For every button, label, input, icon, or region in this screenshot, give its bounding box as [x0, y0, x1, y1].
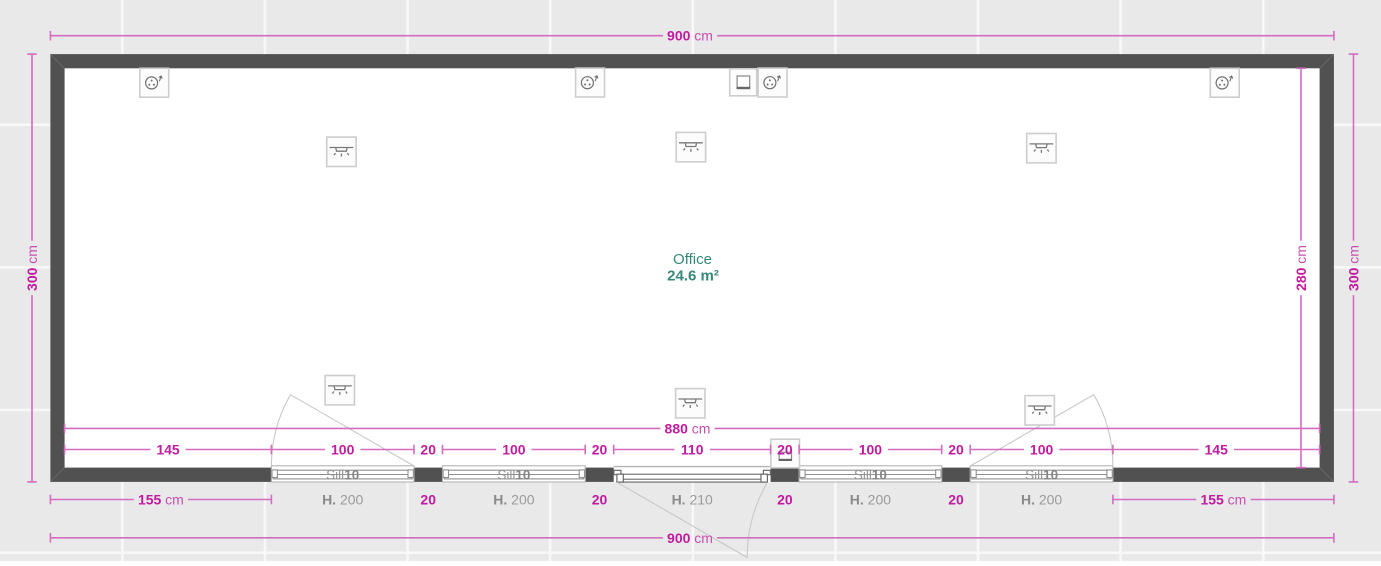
svg-text:20: 20	[420, 492, 436, 508]
svg-text:H. 200: H. 200	[493, 492, 534, 508]
svg-text:Sill10: Sill10	[326, 468, 359, 483]
svg-text:300 cm: 300 cm	[1346, 245, 1362, 291]
svg-text:20: 20	[592, 442, 608, 458]
svg-text:20: 20	[948, 442, 964, 458]
svg-text:20: 20	[777, 492, 793, 508]
svg-text:155 cm: 155 cm	[1200, 492, 1246, 508]
svg-text:24.6 m²: 24.6 m²	[667, 268, 719, 285]
svg-text:900 cm: 900 cm	[667, 530, 713, 546]
svg-text:20: 20	[948, 492, 964, 508]
svg-text:H. 210: H. 210	[672, 492, 713, 508]
svg-text:100: 100	[1030, 442, 1054, 458]
svg-text:100: 100	[859, 442, 883, 458]
svg-text:300 cm: 300 cm	[24, 245, 40, 291]
svg-text:110: 110	[681, 442, 704, 458]
svg-text:H. 200: H. 200	[1021, 492, 1062, 508]
svg-text:155 cm: 155 cm	[138, 492, 184, 508]
svg-text:Sill10: Sill10	[854, 468, 887, 483]
svg-text:280 cm: 280 cm	[1293, 245, 1309, 291]
svg-text:Sill10: Sill10	[1025, 468, 1058, 483]
svg-text:20: 20	[420, 442, 436, 458]
svg-text:20: 20	[777, 442, 793, 458]
svg-text:100: 100	[502, 442, 526, 458]
svg-text:H. 200: H. 200	[322, 492, 363, 508]
svg-text:100: 100	[331, 442, 355, 458]
svg-text:20: 20	[592, 492, 608, 508]
svg-text:880 cm: 880 cm	[665, 420, 711, 436]
svg-text:Sill10: Sill10	[497, 468, 530, 483]
svg-text:900 cm: 900 cm	[667, 28, 713, 44]
svg-text:H. 200: H. 200	[850, 492, 891, 508]
svg-text:145: 145	[1205, 442, 1229, 458]
svg-text:Office: Office	[673, 251, 712, 268]
svg-text:145: 145	[156, 442, 180, 458]
